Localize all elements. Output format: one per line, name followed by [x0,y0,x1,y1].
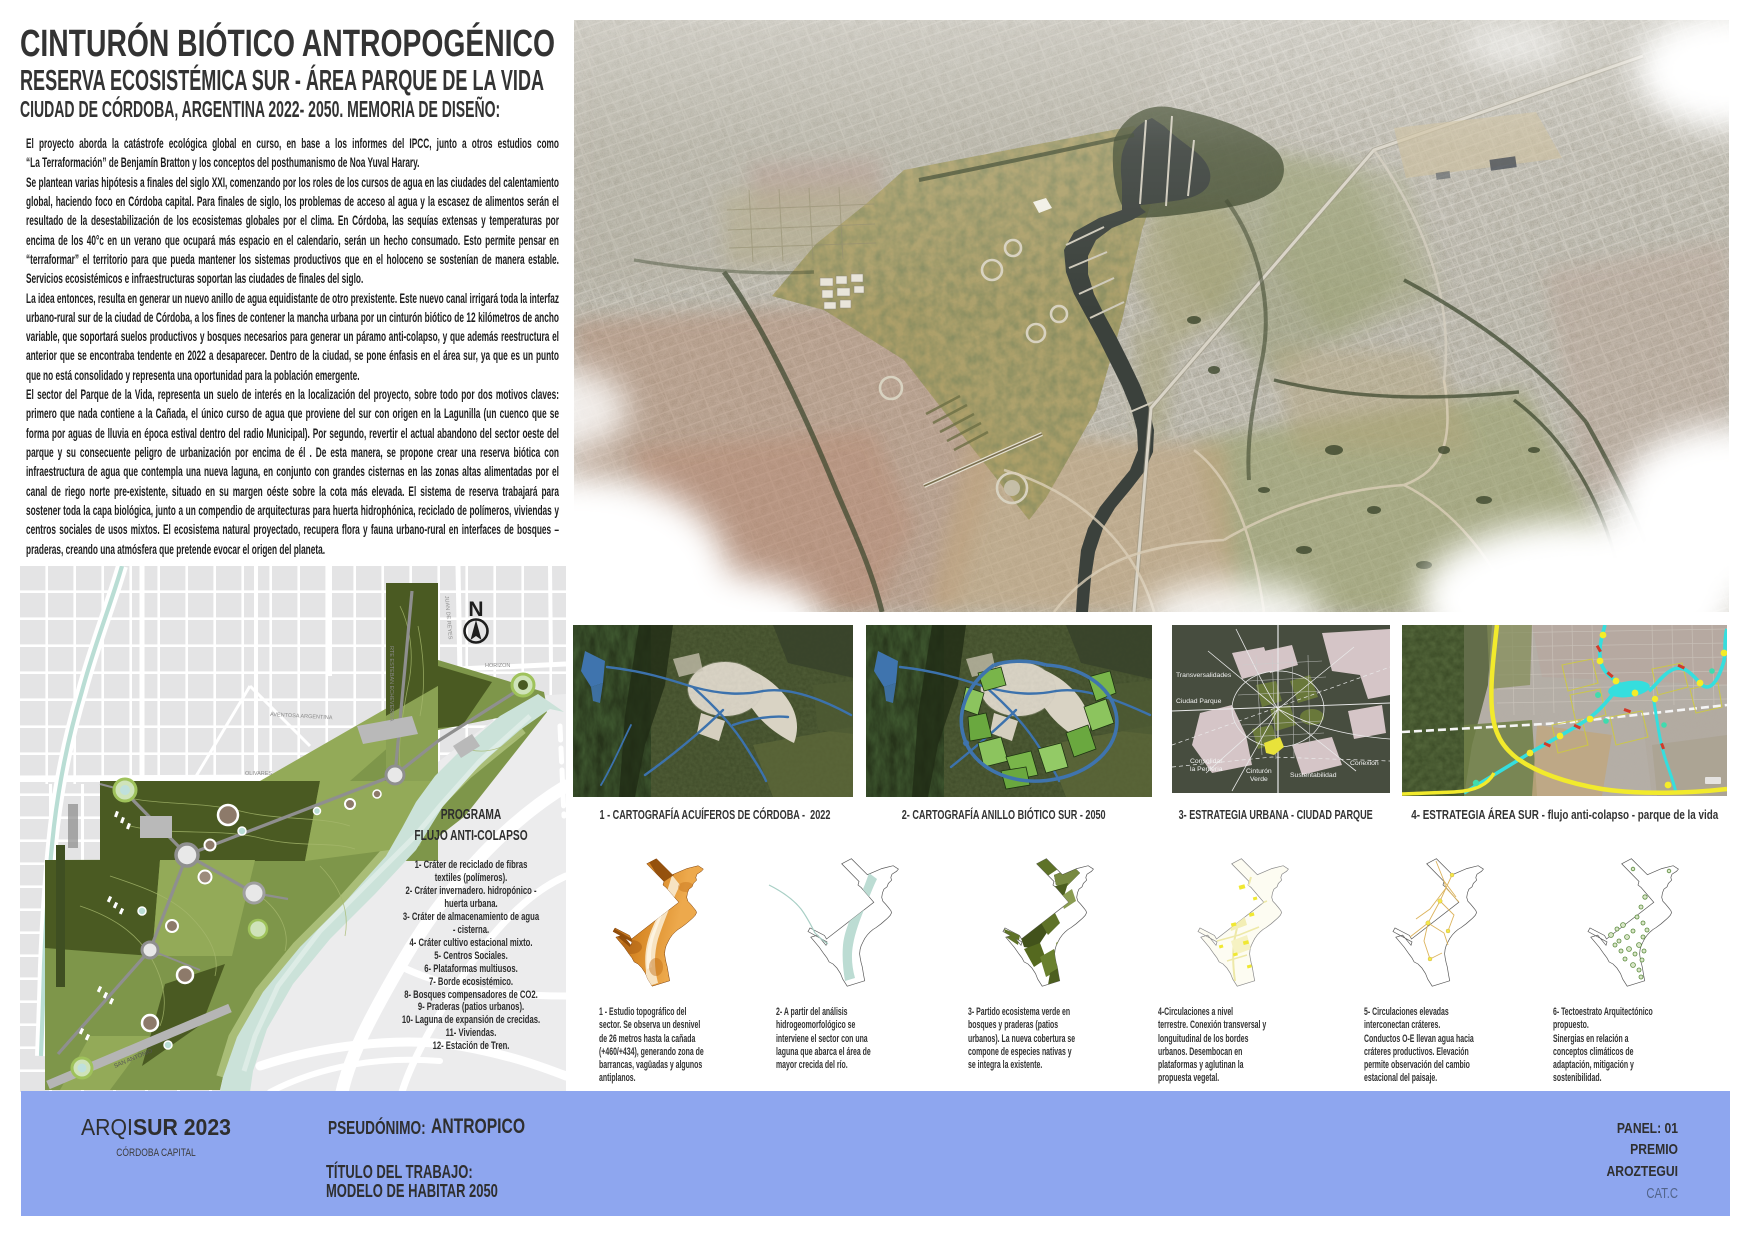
svg-text:Sustentabilidad: Sustentabilidad [1290,772,1337,779]
svg-text:OLIVARES: OLIVARES [245,771,272,777]
svg-text:HORIZON: HORIZON [485,663,510,669]
svg-text:Verde: Verde [1250,776,1268,783]
svg-text:Conexión: Conexión [1350,760,1379,767]
svg-text:N: N [468,598,483,621]
svg-text:Consolidar: Consolidar [1190,758,1223,765]
svg-text:RTE ESTEBAN ECHEVERRIA: RTE ESTEBAN ECHEVERRIA [388,646,394,722]
svg-text:la Periferia: la Periferia [1190,766,1223,773]
svg-text:Ciudad Parque: Ciudad Parque [1176,698,1222,705]
svg-text:Cinturón: Cinturón [1246,768,1272,775]
svg-text:Transversalidades: Transversalidades [1176,672,1232,679]
